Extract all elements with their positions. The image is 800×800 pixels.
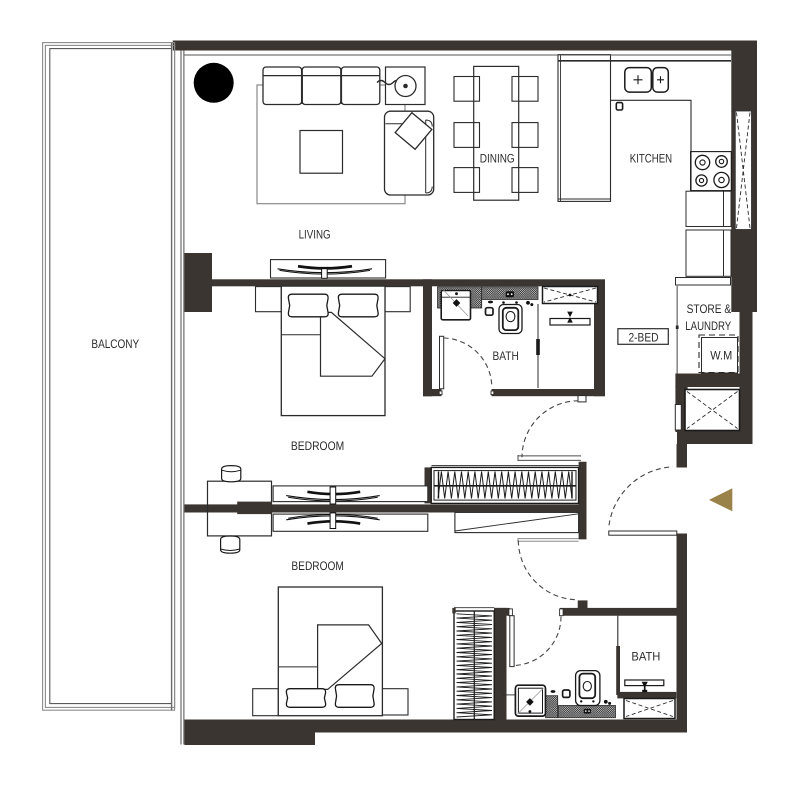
svg-text:BEDROOM: BEDROOM: [291, 559, 344, 573]
svg-text:LAUNDRY: LAUNDRY: [685, 319, 731, 333]
svg-text:2-BED: 2-BED: [629, 330, 659, 344]
svg-text:BEDROOM: BEDROOM: [291, 439, 344, 453]
svg-text:W.M: W.M: [710, 348, 732, 362]
svg-text:STORE &: STORE &: [687, 302, 732, 316]
svg-text:BALCONY: BALCONY: [91, 337, 139, 351]
svg-text:KITCHEN: KITCHEN: [630, 152, 672, 166]
svg-text:LIVING: LIVING: [299, 228, 331, 242]
svg-text:DINING: DINING: [480, 152, 515, 166]
svg-text:BATH: BATH: [493, 349, 519, 363]
svg-text:BATH: BATH: [631, 650, 660, 664]
